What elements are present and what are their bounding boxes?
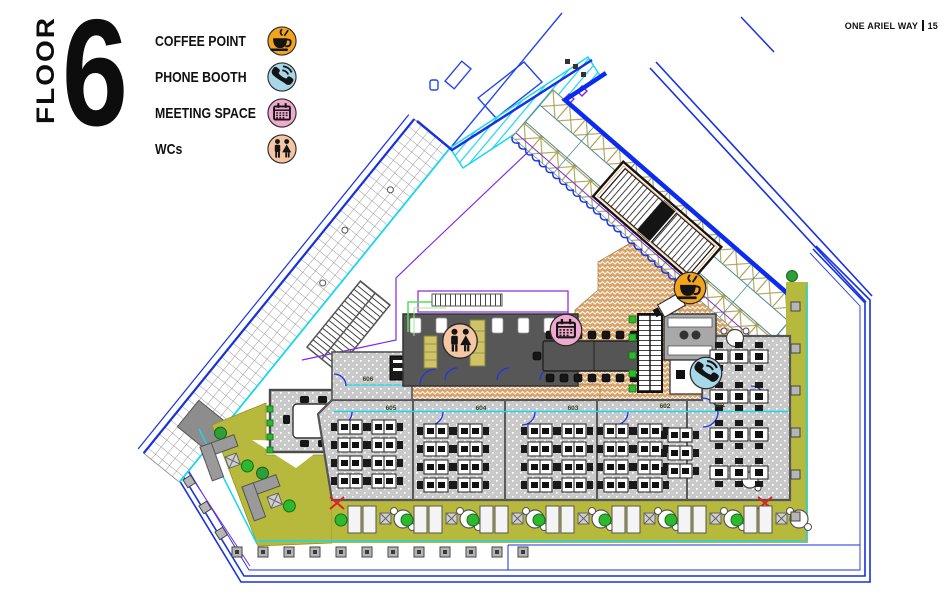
floor-number: 6 xyxy=(62,14,123,133)
meeting-icon xyxy=(267,98,297,128)
wcs-marker xyxy=(443,324,478,359)
floor-word: FLOOR xyxy=(32,28,61,124)
coffee-point-marker xyxy=(674,272,706,304)
meeting-space-marker xyxy=(550,314,582,346)
legend-item-phone-booth: PHONE BOOTH xyxy=(155,62,297,92)
wc-icon xyxy=(267,134,297,164)
project-name: ONE ARIEL WAY xyxy=(845,21,918,31)
room-label-604: 604 xyxy=(476,405,487,412)
room-label-602: 602 xyxy=(660,403,671,410)
divider xyxy=(922,20,924,31)
legend-item-wcs: WCs xyxy=(155,134,297,164)
legend-item-meeting-space: MEETING SPACE xyxy=(155,98,297,128)
legend-label: PHONE BOOTH xyxy=(155,69,247,86)
room-label-601: 601 xyxy=(715,402,726,409)
floorplan-page: 606 605 604 603 602 601 FLOOR 6 COFFEE P… xyxy=(0,0,950,595)
tea-point xyxy=(664,314,716,360)
room-label-606: 606 xyxy=(363,376,374,383)
meeting-table xyxy=(533,331,655,382)
page-reference: ONE ARIEL WAY 15 xyxy=(845,20,938,31)
coffee-icon xyxy=(267,26,297,56)
legend-label: COFFEE POINT xyxy=(155,33,247,50)
legend: COFFEE POINT PHONE BOOTH MEETING SPACE W… xyxy=(155,26,297,170)
desk-row xyxy=(710,420,768,449)
desk-row xyxy=(710,458,768,487)
phone-icon xyxy=(267,62,297,92)
legend-label: WCs xyxy=(155,141,247,158)
legend-label: MEETING SPACE xyxy=(155,105,247,122)
room-label-603: 603 xyxy=(568,405,579,412)
page-number: 15 xyxy=(928,21,938,31)
desk-column xyxy=(661,428,699,478)
floor-title: FLOOR 6 xyxy=(30,14,141,133)
room-label-605: 605 xyxy=(386,405,397,412)
floor-plan: 606 605 604 603 602 601 xyxy=(0,0,950,595)
legend-item-coffee-point: COFFEE POINT xyxy=(155,26,297,56)
phone-booth-marker xyxy=(690,357,722,389)
